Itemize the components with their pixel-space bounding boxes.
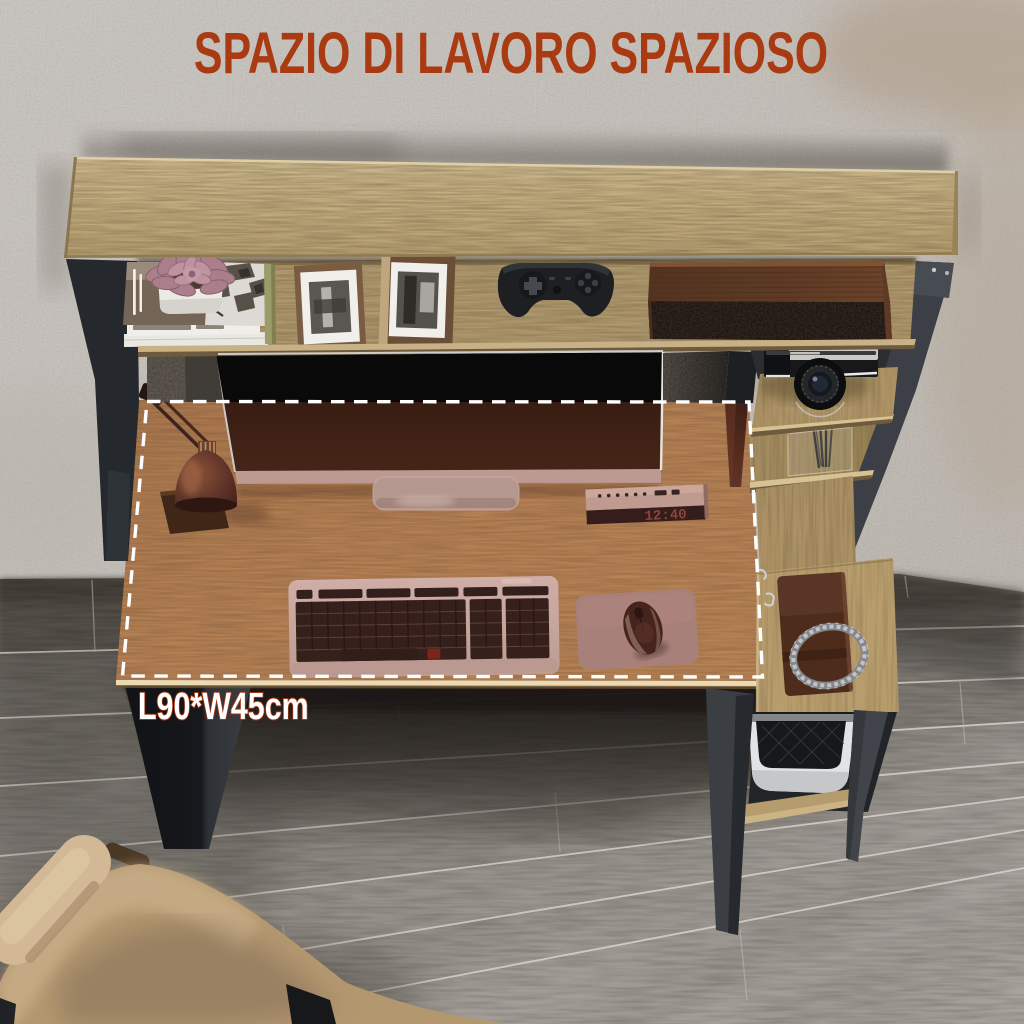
svg-text:12:40: 12:40 (644, 507, 687, 525)
svg-text:L90*W45cm: L90*W45cm (138, 686, 309, 728)
svg-text:SPAZIO DI LAVORO SPAZIOSO: SPAZIO DI LAVORO SPAZIOSO (194, 21, 828, 86)
